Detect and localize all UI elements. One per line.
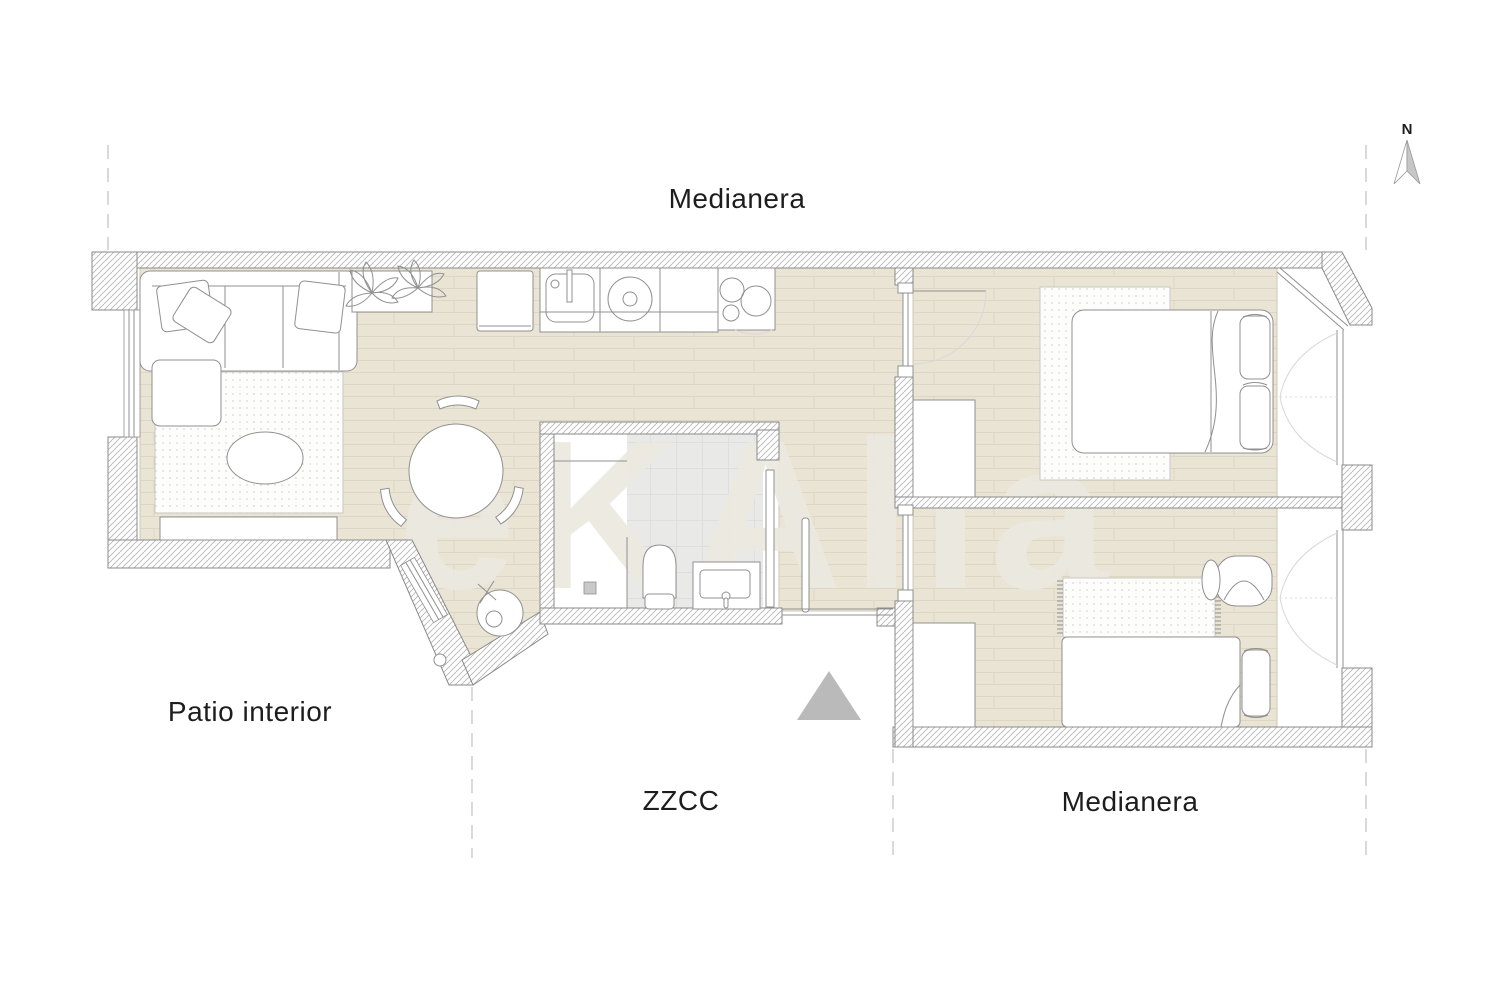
wall-chamfer — [1322, 252, 1372, 325]
armchair — [1202, 556, 1272, 606]
wall-left-top — [92, 252, 137, 310]
fridge — [477, 271, 533, 331]
bedroom2-window — [1280, 530, 1343, 668]
single-bed — [1062, 637, 1270, 727]
tv-console — [160, 517, 337, 540]
living-window — [124, 310, 140, 437]
north-indicator: N — [1394, 121, 1420, 184]
wall-partition-mid — [895, 377, 913, 505]
wall-right-pier — [1342, 465, 1372, 530]
floor-plan: eKAlia — [0, 0, 1500, 1000]
coffee-table — [227, 432, 303, 484]
kitchen-cabinet — [660, 268, 718, 332]
wall-bath-top — [540, 422, 779, 434]
wall-entry-jamb — [877, 608, 895, 626]
north-needle-right — [1407, 140, 1420, 184]
wall-top — [92, 252, 1332, 268]
washing-machine — [600, 268, 660, 332]
north-needle-left — [1394, 140, 1407, 184]
cooktop — [718, 268, 775, 334]
wall-bath-left — [540, 422, 554, 624]
bedroom2-rug — [1057, 578, 1221, 637]
wall-bedroom-partition — [895, 497, 1342, 508]
dining-table — [409, 424, 503, 518]
label-patio-interior: Patio interior — [168, 696, 332, 727]
kitchen — [477, 268, 775, 334]
wall-bath-bottom — [540, 608, 782, 624]
wall-bath-right-top — [757, 430, 779, 460]
wall-bottom — [893, 727, 1372, 747]
hall-door-leaf — [802, 518, 809, 612]
bedroom1-window — [1280, 330, 1343, 465]
bathroom-sliding-door — [766, 470, 774, 607]
wall-left-bottom — [108, 437, 137, 545]
double-bed — [1072, 310, 1273, 453]
bedroom1-wardrobe — [913, 400, 975, 497]
wall-living-bottom — [108, 540, 390, 568]
wall-partition-top-jamb — [895, 268, 913, 285]
toilet — [643, 545, 676, 609]
wall-partition-low — [895, 601, 913, 747]
label-medianera-bottom: Medianera — [1062, 786, 1199, 817]
entrance-arrow — [797, 671, 861, 720]
north-label: N — [1402, 121, 1413, 138]
shower-drain — [584, 582, 596, 594]
kitchen-sink — [540, 268, 600, 332]
label-zzcc: ZZCC — [643, 785, 720, 816]
label-medianera-top: Medianera — [669, 183, 806, 214]
bedroom2-wardrobe — [913, 623, 975, 727]
bathroom-sink — [693, 562, 760, 609]
